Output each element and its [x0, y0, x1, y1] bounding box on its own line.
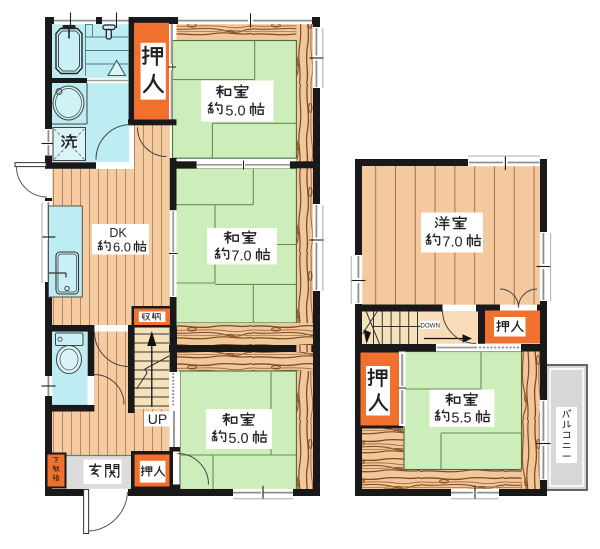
svg-text:UP: UP [148, 411, 167, 427]
svg-text:DK: DK [109, 226, 127, 240]
svg-text:5.5: 5.5 [451, 411, 471, 427]
svg-text:5.0: 5.0 [228, 431, 248, 447]
svg-text:6.0: 6.0 [113, 240, 131, 255]
svg-text:5.0: 5.0 [225, 104, 245, 120]
svg-text:DOWN: DOWN [420, 322, 440, 329]
svg-text:7.0: 7.0 [231, 249, 251, 265]
svg-text:7.0: 7.0 [442, 235, 462, 251]
